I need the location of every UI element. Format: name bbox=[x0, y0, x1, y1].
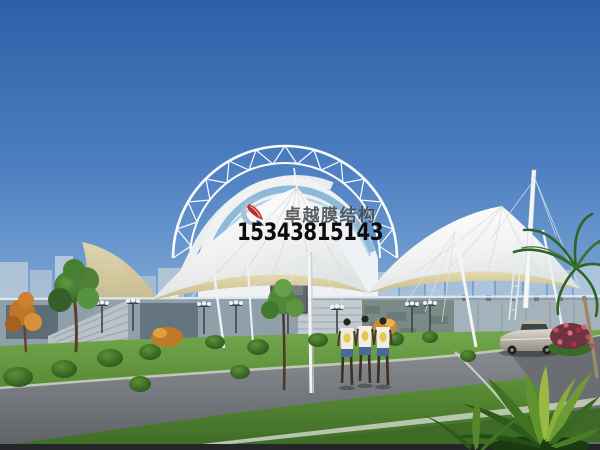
scene-svg bbox=[0, 0, 600, 450]
center-mast bbox=[309, 252, 311, 393]
architectural-rendering: 卓越膜结构 15343815143 bbox=[0, 0, 600, 450]
